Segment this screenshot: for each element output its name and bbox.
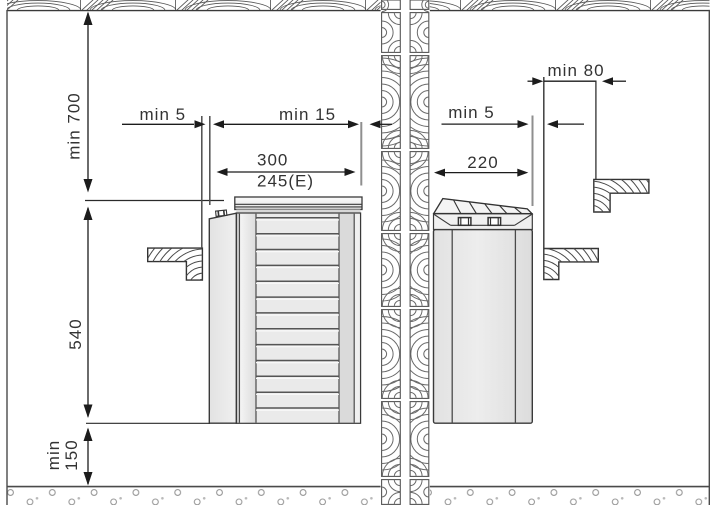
svg-text:min: min: [44, 440, 63, 470]
svg-text:220: 220: [467, 153, 498, 172]
svg-text:min 700: min 700: [65, 92, 84, 159]
svg-text:min 5: min 5: [140, 105, 187, 124]
svg-text:min 5: min 5: [448, 103, 495, 122]
svg-text:min 80: min 80: [548, 61, 605, 80]
svg-text:540: 540: [66, 318, 85, 349]
svg-text:300: 300: [257, 151, 288, 170]
svg-text:min 15: min 15: [279, 105, 336, 124]
svg-text:245(E): 245(E): [257, 172, 314, 191]
svg-text:150: 150: [62, 439, 81, 470]
